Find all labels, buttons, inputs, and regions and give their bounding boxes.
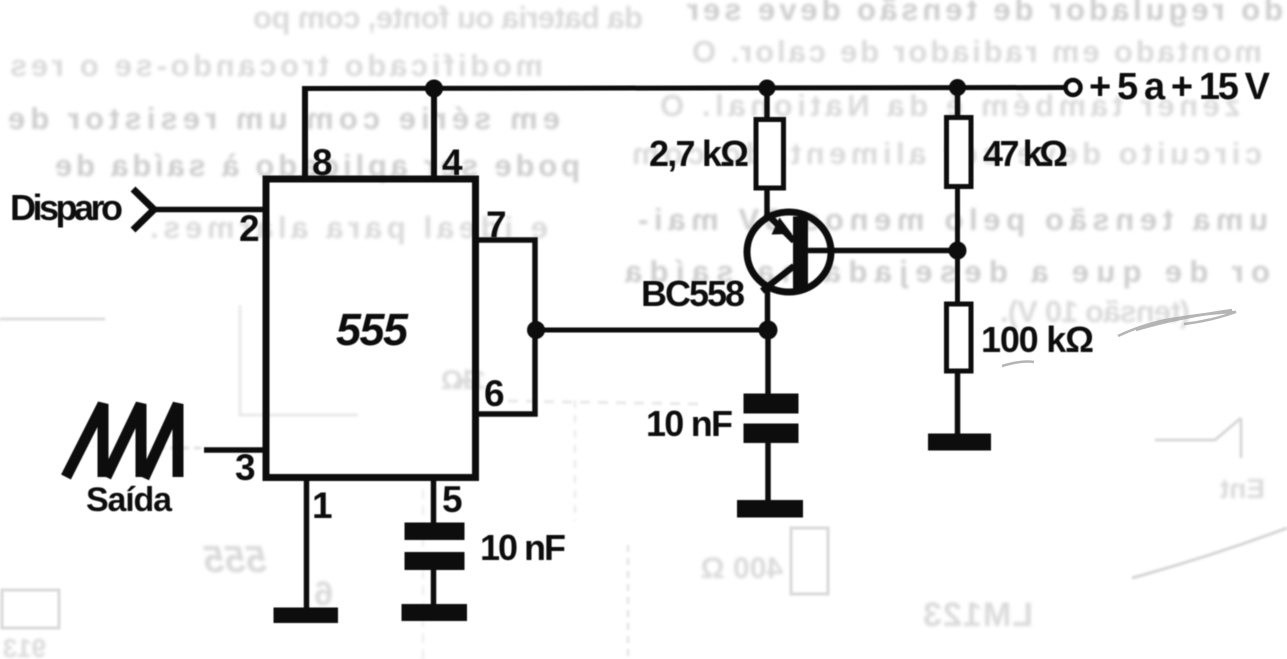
svg-text:555: 555 [203, 539, 267, 581]
svg-text:5: 5 [442, 479, 463, 520]
svg-text:10 nF: 10 nF [480, 527, 566, 568]
svg-text:2,7 kΩ: 2,7 kΩ [649, 133, 749, 174]
svg-text:4: 4 [442, 142, 463, 183]
svg-text:uma tensão pelo menos 3V mai-: uma tensão pelo menos 3V mai- [638, 202, 1268, 237]
svg-text:10 nF: 10 nF [646, 403, 733, 444]
svg-text:Disparo: Disparo [10, 187, 123, 228]
svg-text:2: 2 [239, 208, 260, 249]
svg-text:400 Ω: 400 Ω [701, 552, 783, 585]
svg-text:1: 1 [312, 485, 333, 526]
svg-text:6: 6 [314, 575, 333, 613]
svg-text:Saída: Saída [86, 481, 173, 519]
svg-text:913: 913 [3, 633, 46, 659]
svg-text:modificado trocando-se o res: modificado trocando-se o res [10, 48, 543, 83]
svg-text:8: 8 [312, 142, 333, 183]
svg-text:+ 5 a + 15 V: + 5 a + 15 V [1089, 66, 1271, 108]
svg-text:BC558: BC558 [641, 273, 745, 314]
svg-text:100 kΩ: 100 kΩ [981, 319, 1094, 360]
svg-text:LM123: LM123 [923, 596, 1033, 634]
svg-text:555: 555 [336, 304, 409, 355]
svg-text:da bateria ou fonte, com po: da bateria ou fonte, com po [253, 0, 643, 35]
svg-text:em série com um resistor de: em série com um resistor de [8, 101, 560, 136]
svg-text:47 kΩ: 47 kΩ [983, 133, 1068, 174]
svg-text:6: 6 [484, 373, 505, 414]
svg-text:12 kΩ: 12 kΩ [441, 365, 486, 395]
svg-text:Ent: Ent [1220, 473, 1265, 504]
svg-text:3: 3 [235, 447, 256, 488]
